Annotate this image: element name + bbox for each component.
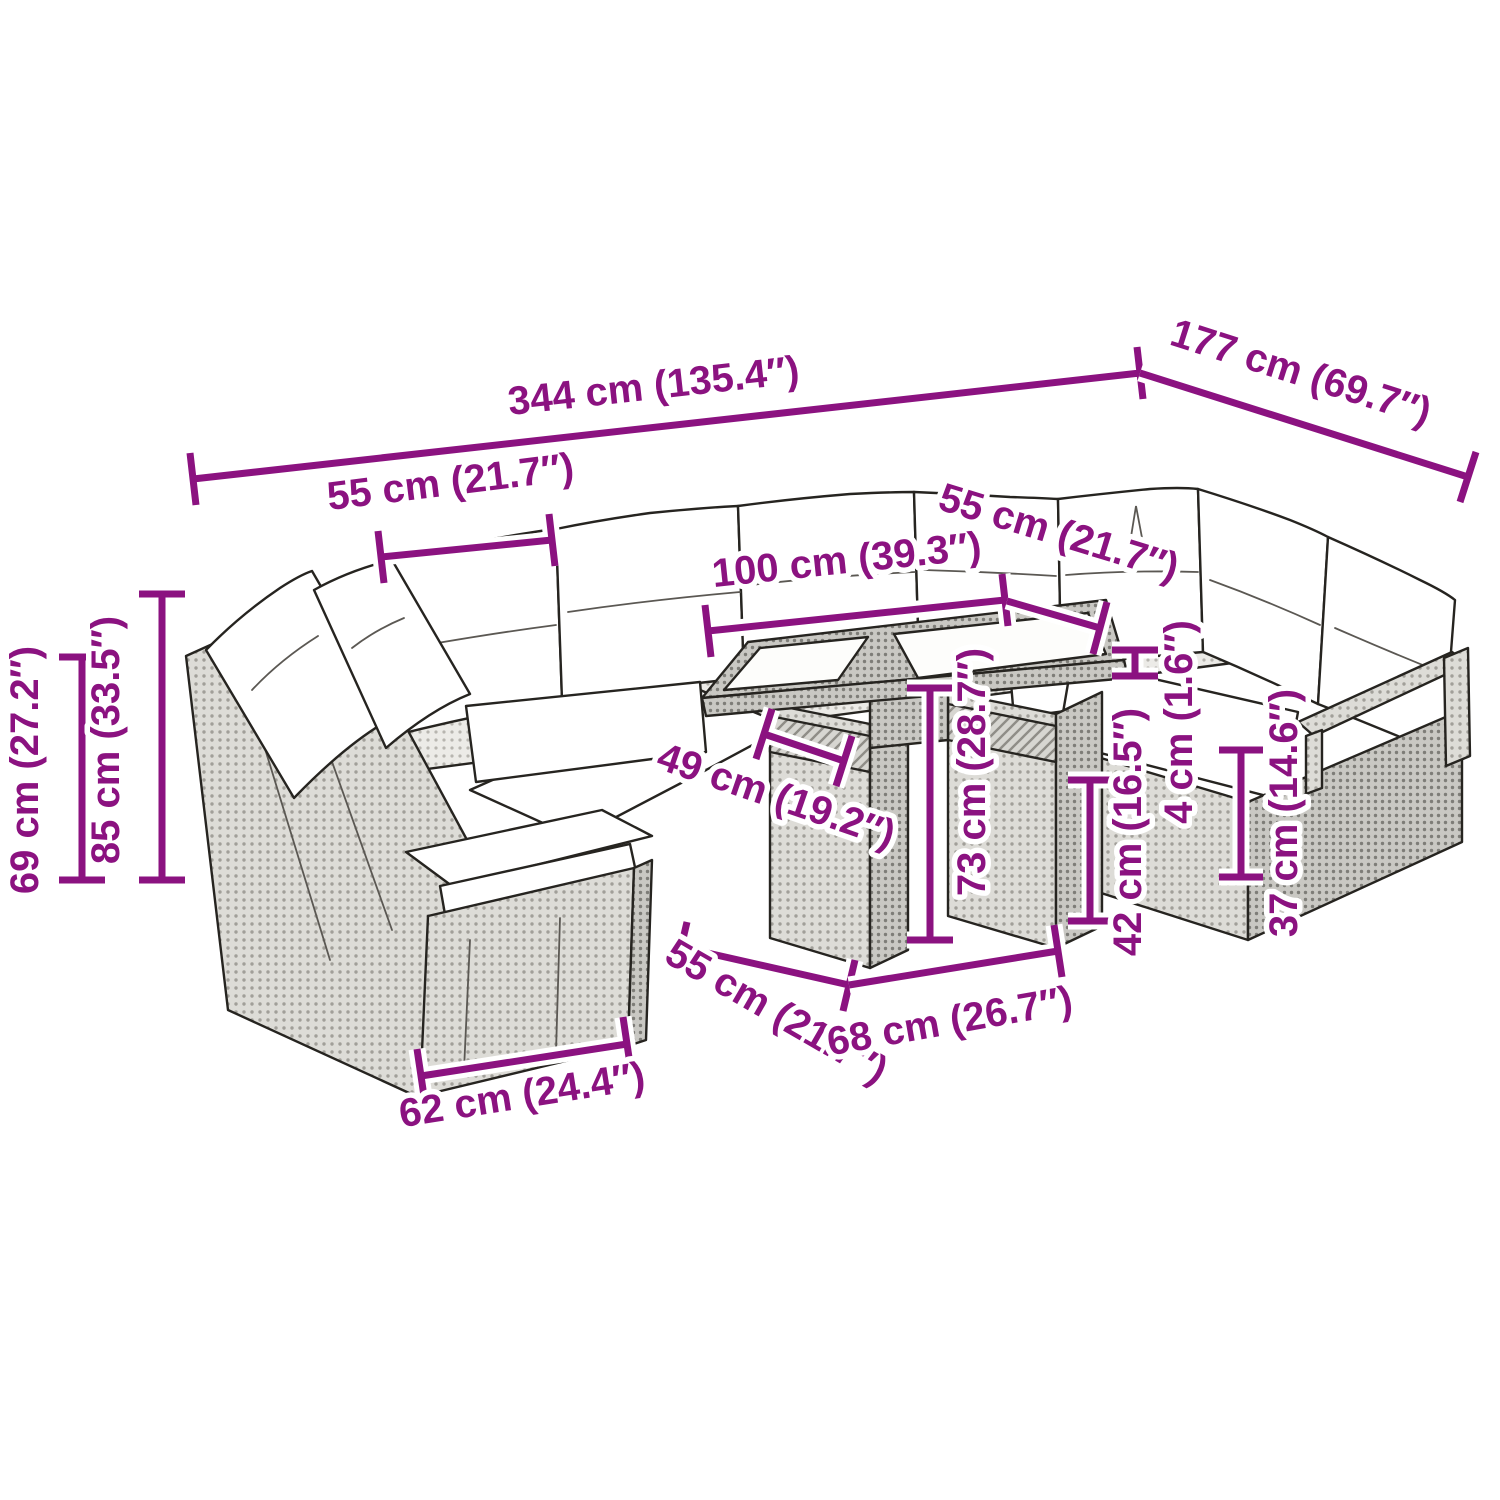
dim-label-backrest-height: 69 cm (27.2″) [3, 646, 47, 894]
dim-label-tabletop-thickness: 4 cm (1.6″) [1157, 620, 1201, 824]
back-cushion [1198, 489, 1328, 704]
dimension-diagram: 344 cm (135.4″) 177 cm (69.7″) 55 cm (21… [0, 0, 1500, 1500]
back-cushion [556, 506, 744, 700]
dim-label-seat-height: 42 cm (16.5″) [1106, 708, 1150, 956]
armrest-post [1444, 648, 1470, 766]
dim-label-front-frame-height: 37 cm (14.6″) [1262, 689, 1306, 937]
dim-overall-depth: 177 cm (69.7″) [1140, 311, 1476, 502]
armrest-post [1306, 730, 1322, 794]
diagram-canvas: 344 cm (135.4″) 177 cm (69.7″) 55 cm (21… [0, 0, 1500, 1500]
dim-total-height: 85 cm (33.5″) [84, 594, 185, 880]
dim-label-total-height: 85 cm (33.5″) [84, 616, 128, 864]
dim-table-height: 73 cm (28.7″) [907, 648, 994, 940]
dim-line [139, 594, 185, 880]
dim-label-table-height: 73 cm (28.7″) [950, 648, 994, 896]
